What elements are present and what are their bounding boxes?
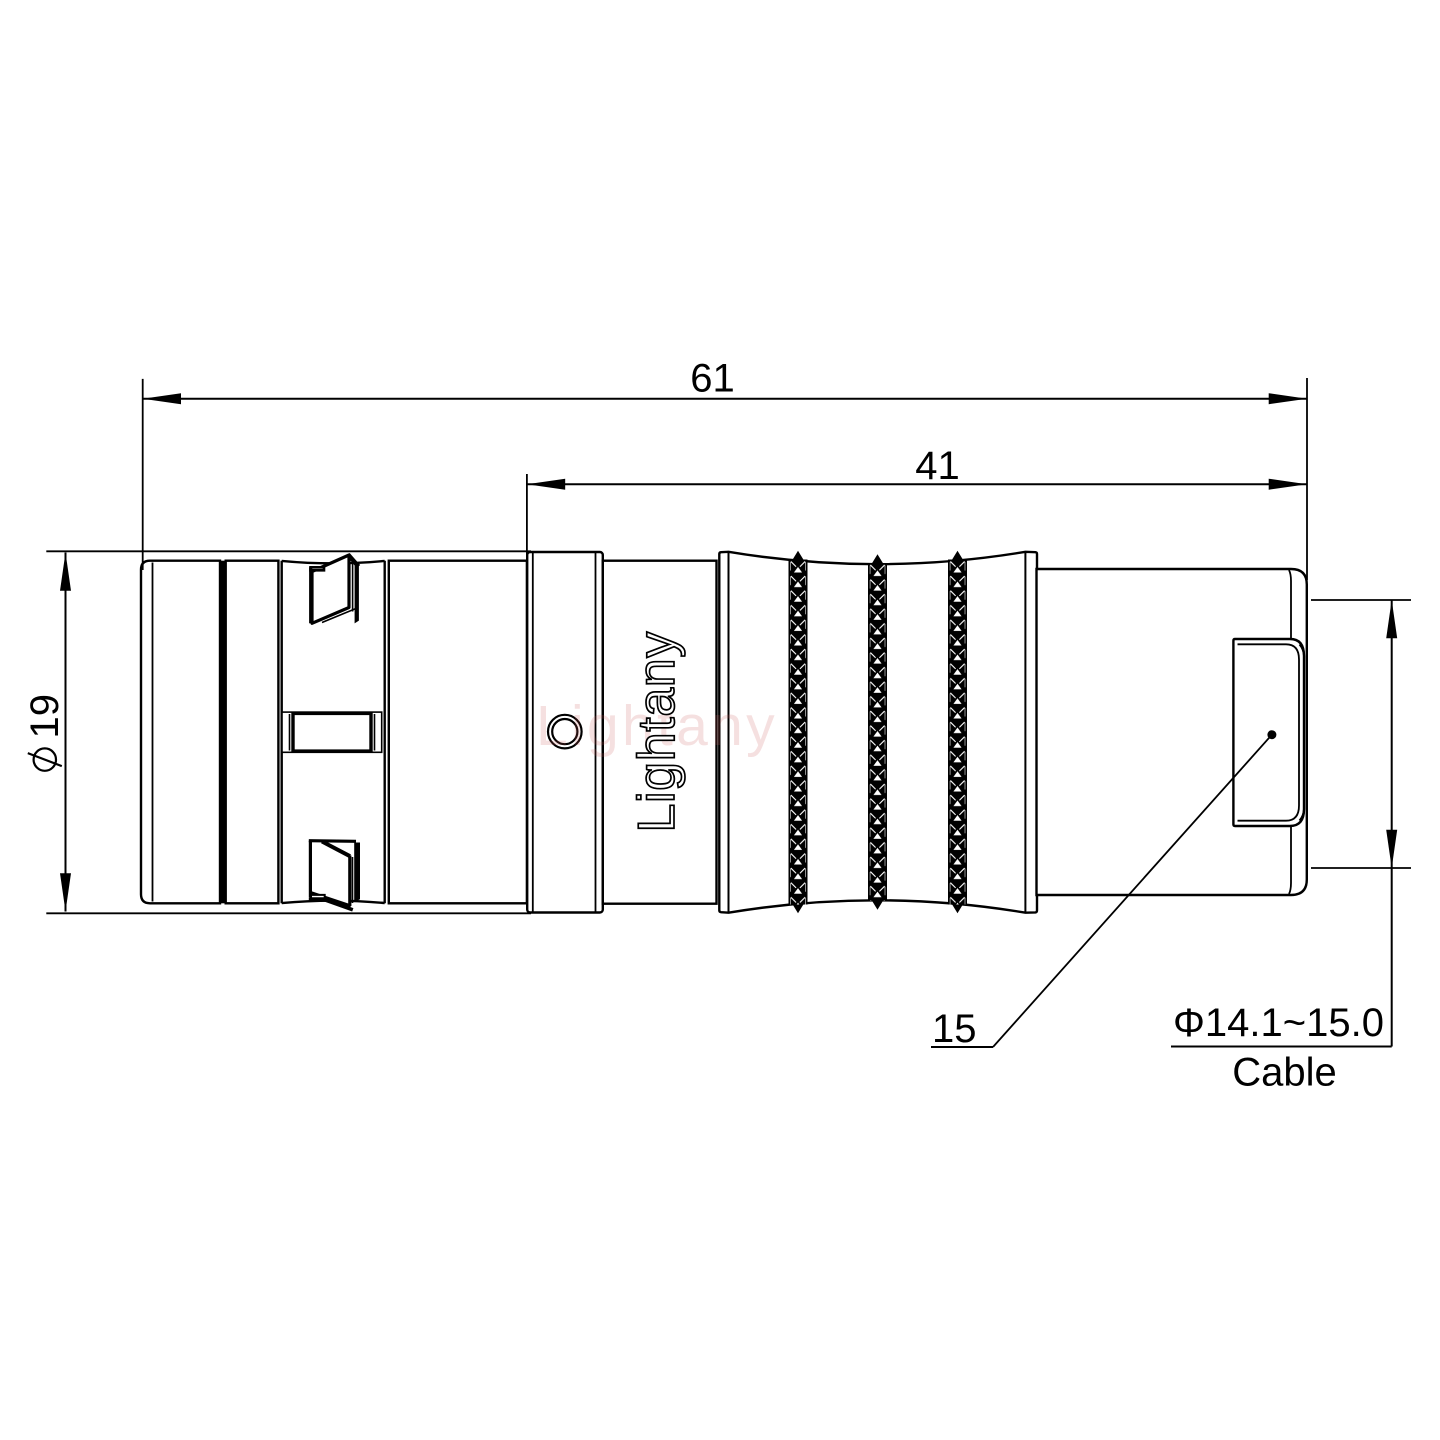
svg-text:Lightany: Lightany xyxy=(628,631,686,832)
svg-text:61: 61 xyxy=(690,357,735,401)
svg-text:Φ14.1~15.0: Φ14.1~15.0 xyxy=(1173,1001,1384,1045)
svg-text:19: 19 xyxy=(23,694,67,739)
svg-text:41: 41 xyxy=(915,444,960,488)
svg-text:Cable: Cable xyxy=(1232,1051,1337,1095)
svg-text:15: 15 xyxy=(932,1007,977,1051)
